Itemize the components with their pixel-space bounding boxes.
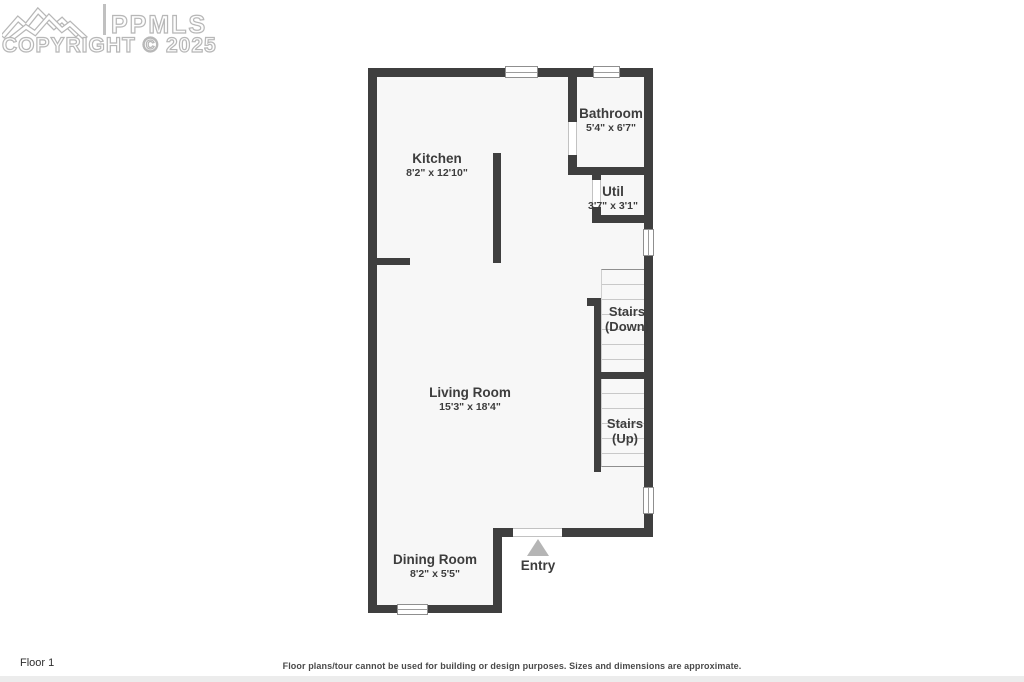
- stairs-up-line2: (Up): [607, 431, 643, 446]
- stairs-down-line2: (Down): [605, 319, 649, 334]
- room-name: Util: [588, 185, 638, 199]
- wall-bathroom-left-upper: [568, 68, 577, 122]
- wall-bathroom-bottom: [568, 167, 653, 175]
- room-dims: 15'3" x 18'4": [429, 401, 511, 414]
- room-dims: 8'2" x 5'5": [393, 568, 477, 581]
- wall-stairs-left: [594, 298, 601, 472]
- bottom-edge-strip: [0, 676, 1024, 682]
- wall-stairs-stub: [587, 298, 601, 306]
- room-name: Kitchen: [406, 152, 468, 166]
- stairs-down-label: Stairs (Down): [605, 304, 649, 334]
- wall-right: [644, 68, 653, 537]
- room-name: Bathroom: [579, 107, 643, 121]
- entry-door-opening: [513, 528, 562, 537]
- wall-dining-bottom: [368, 605, 502, 613]
- wall-entry-right: [562, 528, 653, 537]
- watermark-copyright: COPYRIGHT © 2025: [2, 34, 217, 58]
- wall-util-bottom: [592, 215, 653, 223]
- wall-kitchen-stub: [368, 258, 410, 265]
- entry-label: Entry: [521, 558, 556, 573]
- wall-dining-right: [493, 528, 502, 613]
- room-dims: 8'2" x 12'10": [406, 167, 468, 180]
- wall-stairs-divider: [594, 372, 653, 379]
- room-name: Dining Room: [393, 553, 477, 567]
- room-dims: 3'7" x 3'1": [588, 200, 638, 213]
- window-top-bathroom: [593, 66, 620, 78]
- ppmls-watermark: PPMLS COPYRIGHT © 2025: [0, 0, 230, 60]
- window-right-hall: [643, 229, 654, 256]
- room-label-living-room: Living Room 15'3" x 18'4": [429, 386, 511, 414]
- room-label-dining-room: Dining Room 8'2" x 5'5": [393, 553, 477, 581]
- disclaimer-text: Floor plans/tour cannot be used for buil…: [0, 661, 1024, 671]
- wall-left: [368, 68, 377, 613]
- watermark-divider-bar: [103, 4, 106, 35]
- stairs-up-line1: Stairs: [607, 416, 643, 431]
- stairs-down-line1: Stairs: [605, 304, 649, 319]
- wall-kitchen-divider: [493, 153, 501, 263]
- window-top-kitchen: [505, 66, 538, 78]
- room-label-bathroom: Bathroom 5'4" x 6'7": [579, 107, 643, 135]
- room-dims: 5'4" x 6'7": [579, 122, 643, 135]
- window-right-entry: [643, 487, 654, 514]
- bathroom-door-opening: [568, 122, 577, 155]
- room-label-kitchen: Kitchen 8'2" x 12'10": [406, 152, 468, 180]
- room-name: Living Room: [429, 386, 511, 400]
- entry-direction-arrow-icon: [527, 539, 549, 556]
- room-label-util: Util 3'7" x 3'1": [588, 185, 638, 213]
- window-dining-bottom: [397, 604, 428, 615]
- stairs-up-label: Stairs (Up): [607, 416, 643, 446]
